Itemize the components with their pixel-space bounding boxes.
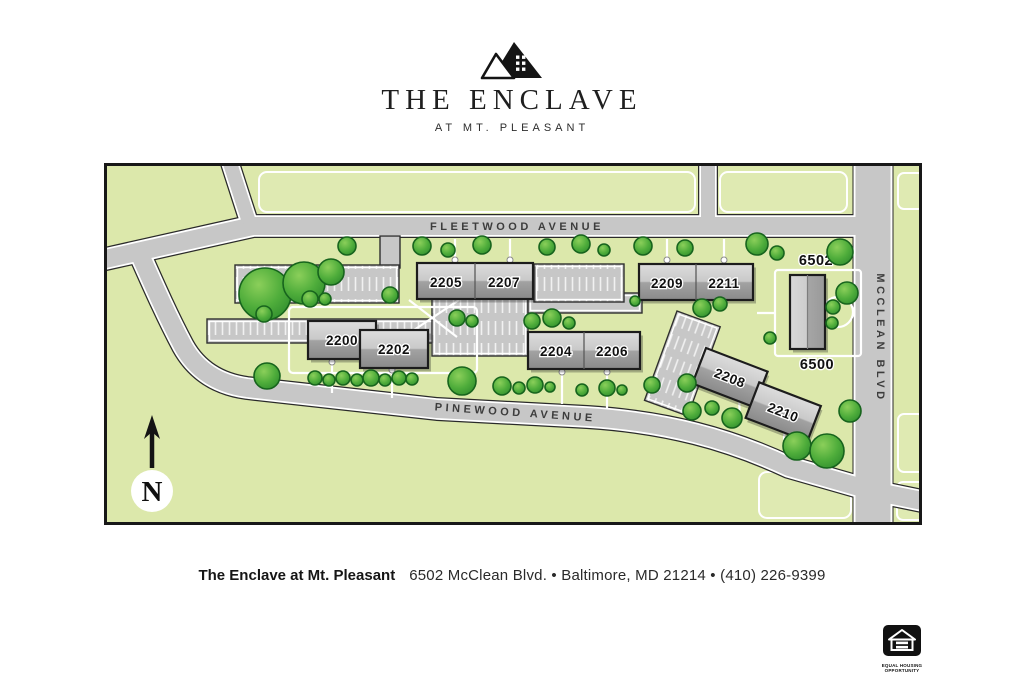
tree-icon [319, 293, 331, 305]
tree-icon [563, 317, 575, 329]
site-map: 2205 2207 2209 2211 2200 2202 2204 2206 [104, 163, 922, 525]
street-label-fleetwood: FLEETWOOD AVENUE [430, 221, 604, 233]
building-address-label: 6500 [800, 357, 834, 373]
building-2205-2207: 2205 2207 [417, 263, 536, 303]
parking-lot [432, 294, 528, 356]
tree-icon [382, 287, 398, 303]
tree-icon [810, 434, 844, 468]
tree-icon [466, 315, 478, 327]
tree-icon [527, 377, 543, 393]
compass-n-label: N [142, 476, 163, 508]
building-unit-label: 2204 [540, 344, 572, 359]
tree-icon [572, 235, 590, 253]
page-subtitle: AT MT. PLEASANT [0, 122, 1024, 134]
tree-icon [256, 306, 272, 322]
building-unit-label: 2211 [708, 276, 739, 291]
tree-icon [379, 374, 391, 386]
tree-icon [764, 332, 776, 344]
equal-housing-icon [882, 624, 922, 657]
tree-icon [441, 243, 455, 257]
parking-lot [534, 264, 624, 302]
tree-icon [826, 317, 838, 329]
building-2204-2206: 2204 2206 [528, 332, 643, 373]
tree-icon [302, 291, 318, 307]
tree-icon [543, 309, 561, 327]
tree-icon [539, 239, 555, 255]
building-2209-2211: 2209 2211 [639, 264, 756, 304]
tree-icon [630, 296, 640, 306]
tree-icon [576, 384, 588, 396]
tree-icon [363, 370, 379, 386]
tree-icon [254, 363, 280, 389]
building-unit-label: 2209 [651, 276, 683, 291]
tree-icon [644, 377, 660, 393]
brand-header: THE ENCLAVE AT MT. PLEASANT [0, 40, 1024, 134]
page-title: THE ENCLAVE [0, 84, 1024, 117]
footer: The Enclave at Mt. Pleasant6502 McClean … [0, 567, 1024, 584]
enclave-mountain-house-icon [480, 40, 544, 80]
building-unit-label: 2206 [596, 344, 628, 359]
tree-icon [693, 299, 711, 317]
tree-icon [598, 244, 610, 256]
tree-icon [308, 371, 322, 385]
footer-name: The Enclave at Mt. Pleasant [198, 567, 395, 584]
tree-icon [617, 385, 627, 395]
tree-icon [705, 401, 719, 415]
building-unit-label: 2205 [430, 275, 462, 290]
tree-icon [713, 297, 727, 311]
tree-icon [524, 313, 540, 329]
footer-address: 6502 McClean Blvd. • Baltimore, MD 21214… [409, 567, 825, 584]
tree-icon [722, 408, 742, 428]
tree-icon [448, 367, 476, 395]
tree-icon [473, 236, 491, 254]
equal-housing-logo: EQUAL HOUSING OPPORTUNITY [878, 624, 926, 673]
tree-icon [827, 239, 853, 265]
tree-icon [323, 374, 335, 386]
tree-icon [318, 259, 344, 285]
tree-icon [545, 382, 555, 392]
tree-icon [392, 371, 406, 385]
tree-icon [413, 237, 431, 255]
tree-icon [338, 237, 356, 255]
tree-icon [351, 374, 363, 386]
building-unit-label: 2202 [378, 342, 410, 357]
tree-icon [634, 237, 652, 255]
tree-icon [599, 380, 615, 396]
equal-housing-label: EQUAL HOUSING OPPORTUNITY [878, 663, 926, 673]
tree-icon [836, 282, 858, 304]
tree-icon [678, 374, 696, 392]
tree-icon [746, 233, 768, 255]
tree-icon [783, 432, 811, 460]
tree-icon [449, 310, 465, 326]
street-label-mcclean: MCCLEAN BLVD [874, 273, 886, 402]
tree-icon [336, 371, 350, 385]
tree-icon [677, 240, 693, 256]
tree-icon [826, 300, 840, 314]
tree-icon [839, 400, 861, 422]
building-unit-label: 2200 [326, 333, 358, 348]
tree-icon [683, 402, 701, 420]
tree-icon [513, 382, 525, 394]
tree-icon [770, 246, 784, 260]
equal-housing-line2: OPPORTUNITY [878, 668, 926, 673]
building-unit-label: 2207 [488, 275, 520, 290]
tree-icon [406, 373, 418, 385]
tree-icon [493, 377, 511, 395]
